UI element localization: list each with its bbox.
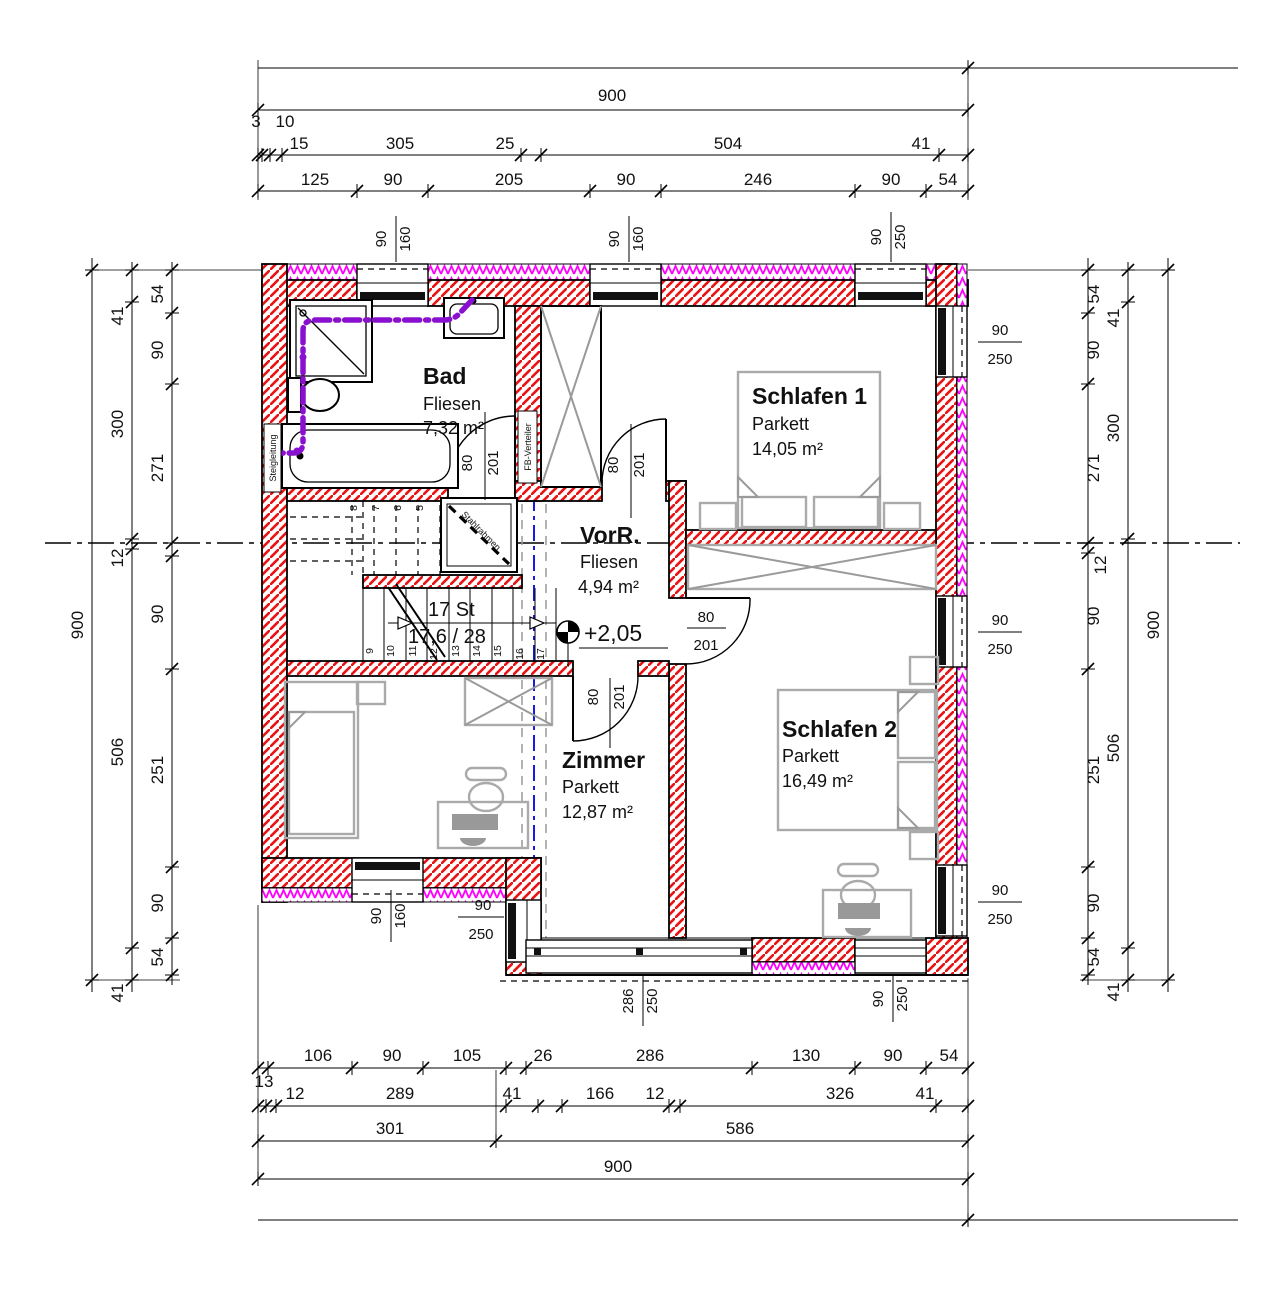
door-schlafen2: 80 201 (686, 598, 750, 664)
dim-value: 504 (714, 134, 742, 153)
dim-value: 12 (286, 1084, 305, 1103)
dim-value: 90 (383, 1046, 402, 1065)
wardrobe-zimmer (465, 678, 552, 725)
dim-value: 54 (1084, 285, 1103, 304)
window-bottom-right (855, 940, 926, 973)
dim-value: 300 (108, 410, 127, 438)
door-tag: 201 (693, 637, 718, 654)
window-tag-terrace: 286 250 (620, 976, 661, 1026)
dim-value: 105 (453, 1046, 481, 1065)
dimensions-left: 900 41 300 12 506 41 54 90 271 90 251 90… (68, 258, 262, 1002)
window-width: 90 (368, 908, 385, 925)
dim-value: 26 (534, 1046, 553, 1065)
room-labels: Bad Fliesen 7,32 m² Schlafen 1 Parkett 1… (423, 363, 897, 822)
step-number: 7 (370, 505, 382, 511)
room-name: VorR. (580, 522, 640, 548)
toilet (288, 378, 339, 412)
dim-value: 900 (604, 1157, 632, 1176)
stair-steps-upper (290, 501, 440, 587)
door-tag: 80 (605, 457, 622, 474)
dim-value: 41 (503, 1084, 522, 1103)
window-tag-bottom-right: 90 250 (870, 976, 911, 1022)
window-tag-top-1: 90 160 (373, 216, 414, 262)
door-tag: 201 (485, 450, 502, 475)
dim-value: 271 (1084, 454, 1103, 482)
dim-value: 305 (386, 134, 414, 153)
step-number: 12 (428, 648, 440, 660)
window-tag-right-3: 90 250 (978, 882, 1022, 928)
dim-value: 271 (148, 454, 167, 482)
window-top-2 (590, 264, 661, 306)
wall-vorraum-east (669, 481, 686, 598)
room-name: Bad (423, 363, 466, 389)
window-width: 90 (870, 991, 887, 1008)
level-marker: +2,05 (557, 620, 668, 667)
riser-label: Steigleitung (268, 434, 278, 481)
dim-value: 506 (108, 738, 127, 766)
dim-value: 166 (586, 1084, 614, 1103)
window-right-2 (936, 596, 967, 667)
dim-value: 90 (148, 341, 167, 360)
dim-value: 586 (726, 1119, 754, 1138)
room-area: 16,49 m² (782, 771, 853, 791)
dim-value: 90 (148, 605, 167, 624)
room-finish: Fliesen (580, 552, 638, 572)
dim-value: 15 (290, 134, 309, 153)
dim-value: 900 (1144, 611, 1163, 639)
dim-value: 300 (1104, 414, 1123, 442)
dim-value: 900 (598, 86, 626, 105)
window-width: 90 (868, 229, 885, 246)
room-area: 7,32 m² (423, 418, 484, 438)
dim-value: 246 (744, 170, 772, 189)
dim-value: 54 (939, 170, 958, 189)
window-width: 90 (992, 612, 1009, 629)
dim-value: 90 (148, 894, 167, 913)
door-tag: 80 (698, 609, 715, 626)
step-number: 10 (385, 645, 397, 657)
fb-distributor-box: FB-Verteiler (518, 411, 537, 483)
room-label-schlafen2: Schlafen 2 Parkett 16,49 m² (782, 716, 897, 791)
dim-value: 90 (1084, 894, 1103, 913)
dim-value: 90 (617, 170, 636, 189)
room-label-schlafen1: Schlafen 1 Parkett 14,05 m² (752, 383, 867, 459)
stair-riser-tread-label: 17,6 / 28 (408, 626, 486, 648)
dim-value: 286 (636, 1046, 664, 1065)
dimensions-top: 900 3 10 15 305 25 504 41 125 90 205 90 … (251, 60, 1238, 200)
dim-value: 205 (495, 170, 523, 189)
step-number: 16 (514, 648, 526, 660)
dim-value: 289 (386, 1084, 414, 1103)
step-number: 15 (492, 645, 504, 657)
window-height: 250 (987, 911, 1012, 928)
dim-value: 41 (1104, 309, 1123, 328)
room-name: Zimmer (562, 747, 645, 773)
dim-value: 12 (1091, 556, 1110, 575)
dim-value: 251 (148, 756, 167, 784)
door-tag: 201 (611, 684, 628, 709)
dim-value: 251 (1084, 756, 1103, 784)
steel-frame-opening: Stahlrahmen (441, 498, 517, 572)
dim-value: 54 (940, 1046, 959, 1065)
room-label-vorraum: VorR. Fliesen 4,94 m² (578, 522, 640, 597)
window-tag-right-1: 90 250 (978, 322, 1022, 368)
room-label-zimmer: Zimmer Parkett 12,87 m² (562, 747, 645, 822)
step-number: 9 (364, 648, 376, 654)
dim-value: 54 (148, 285, 167, 304)
door-tag: 201 (631, 452, 648, 477)
room-name: Schlafen 1 (752, 383, 867, 409)
window-height: 250 (987, 351, 1012, 368)
window-tag-step: 90 250 (458, 897, 504, 943)
stair-count-label: 17 St (428, 599, 475, 621)
dim-value: 10 (276, 112, 295, 131)
shaft-box (541, 306, 601, 487)
dim-value: 90 (384, 170, 403, 189)
window-tag-right-2: 90 250 (978, 612, 1022, 658)
room-name: Schlafen 2 (782, 716, 897, 742)
window-tag-top-2: 90 160 (606, 216, 647, 262)
room-area: 14,05 m² (752, 439, 823, 459)
dim-value: 41 (912, 134, 931, 153)
riser-label-box: Steigleitung (264, 424, 281, 492)
door-tag: 80 (459, 455, 476, 472)
window-terrace-band (526, 940, 752, 973)
window-bottom-left (352, 858, 423, 902)
room-finish: Parkett (782, 746, 839, 766)
room-area: 12,87 m² (562, 802, 633, 822)
dim-value: 3 (251, 112, 260, 131)
wall-zimmer-north (287, 661, 573, 676)
floor-plan-drawing: Stahlrahmen 8 7 6 5 9 10 11 12 13 14 15 … (0, 0, 1274, 1310)
step-number: 5 (414, 505, 426, 511)
dim-value: 326 (826, 1084, 854, 1103)
dim-value: 41 (1104, 983, 1123, 1002)
window-height: 160 (397, 226, 414, 251)
window-height: 250 (987, 641, 1012, 658)
window-right-1 (936, 306, 967, 377)
dim-value: 54 (1084, 948, 1103, 967)
wardrobe-schlafen (688, 545, 936, 589)
dim-value: 13 (255, 1072, 274, 1091)
wall-schlafen1-south (686, 530, 936, 545)
dim-value: 900 (68, 611, 87, 639)
window-width: 286 (620, 988, 637, 1013)
floor-plan-canvas: Stahlrahmen 8 7 6 5 9 10 11 12 13 14 15 … (0, 0, 1274, 1310)
dim-value: 41 (108, 984, 127, 1003)
dim-value: 301 (376, 1119, 404, 1138)
window-height: 250 (894, 986, 911, 1011)
dim-value: 106 (304, 1046, 332, 1065)
fb-distributor-label: FB-Verteiler (523, 423, 533, 471)
room-finish: Fliesen (423, 394, 481, 414)
step-number: 17 (535, 648, 547, 660)
room-finish: Parkett (562, 777, 619, 797)
dim-value: 54 (148, 948, 167, 967)
window-width: 90 (373, 231, 390, 248)
door-schlafen1: 80 201 (602, 419, 666, 518)
door-tag: 80 (585, 689, 602, 706)
window-width: 90 (606, 231, 623, 248)
bed-zimmer (285, 682, 385, 838)
dim-value: 506 (1104, 734, 1123, 762)
level-value: +2,05 (584, 620, 642, 646)
dim-value: 90 (1084, 341, 1103, 360)
window-width: 90 (992, 882, 1009, 899)
window-top-3 (855, 264, 926, 306)
dim-value: 90 (882, 170, 901, 189)
dim-value: 125 (301, 170, 329, 189)
dim-value: 12 (108, 549, 127, 568)
window-width: 90 (992, 322, 1009, 339)
wall-zimmer-schlafen2 (669, 664, 686, 938)
window-tag-top-3: 90 250 (868, 212, 909, 262)
window-height: 160 (630, 226, 647, 251)
room-area: 4,94 m² (578, 577, 639, 597)
dim-value: 130 (792, 1046, 820, 1065)
step-number: 8 (348, 505, 360, 511)
wall-stair-spine (363, 575, 522, 588)
step-number: 6 (392, 505, 404, 511)
desk-zimmer (438, 768, 528, 848)
axis-lines (45, 264, 1240, 938)
room-label-bad: Bad Fliesen 7,32 m² (423, 363, 484, 438)
window-height: 250 (892, 224, 909, 249)
window-right-3 (936, 865, 967, 936)
room-finish: Parkett (752, 414, 809, 434)
door-zimmer: 80 201 (573, 676, 638, 748)
dim-value: 90 (1084, 607, 1103, 626)
window-height: 250 (468, 926, 493, 943)
window-height: 160 (392, 903, 409, 928)
dim-value: 12 (646, 1084, 665, 1103)
window-width: 90 (475, 897, 492, 914)
dim-value: 41 (916, 1084, 935, 1103)
dim-value: 25 (496, 134, 515, 153)
window-height: 250 (644, 988, 661, 1013)
dim-value: 90 (884, 1046, 903, 1065)
dim-value: 41 (108, 307, 127, 326)
desk-schlafen2 (823, 864, 911, 937)
